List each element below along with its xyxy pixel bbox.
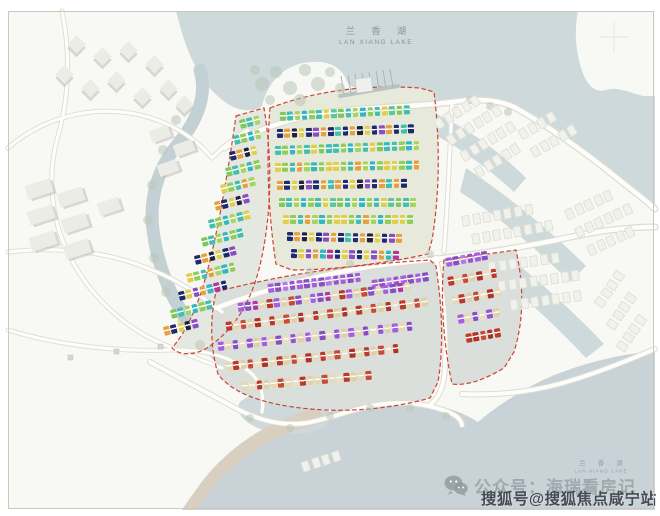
house-unit <box>285 378 291 387</box>
house-unit <box>198 302 206 312</box>
house-unit <box>364 250 370 259</box>
house-unit <box>400 215 406 224</box>
house-unit <box>252 301 259 311</box>
house-unit <box>282 282 289 292</box>
house-row <box>451 287 503 305</box>
house-unit <box>421 297 428 307</box>
house-unit <box>254 318 261 328</box>
house-unit <box>350 126 356 135</box>
house-unit <box>287 232 293 241</box>
house-unit <box>401 124 407 133</box>
house-unit <box>408 124 414 133</box>
house-unit <box>297 145 303 154</box>
house-row <box>178 280 230 301</box>
house-unit <box>240 133 248 143</box>
house-unit <box>319 162 325 171</box>
house-unit <box>386 125 392 134</box>
house-unit <box>243 147 251 157</box>
house-unit <box>308 198 314 207</box>
house-row <box>229 145 259 161</box>
house-unit <box>325 276 332 286</box>
house-unit <box>490 269 497 279</box>
house-unit <box>289 281 296 291</box>
house-unit <box>256 380 262 389</box>
sohu-watermark: 搜狐号@搜狐焦点咸宁站 <box>481 487 657 509</box>
house-row <box>201 228 246 247</box>
house-unit <box>184 305 192 315</box>
house-unit <box>262 358 268 368</box>
house-unit <box>392 323 398 333</box>
house-unit <box>345 233 351 242</box>
house-unit <box>317 293 324 303</box>
house-unit <box>356 305 363 315</box>
house-row <box>447 268 499 286</box>
house-unit <box>242 194 250 204</box>
house-unit <box>371 250 377 259</box>
house-unit <box>314 375 320 384</box>
house-unit <box>279 198 285 207</box>
house-unit <box>225 341 231 351</box>
house-unit <box>370 304 377 314</box>
house-unit <box>229 214 237 224</box>
house-unit <box>333 144 339 153</box>
house-unit <box>334 215 340 224</box>
house-row <box>208 210 253 229</box>
lake-label-top: 兰 香 湖 LAN XIANG LAKE <box>306 24 446 46</box>
house-unit <box>275 282 282 292</box>
house-unit <box>193 271 201 281</box>
house-row <box>279 198 418 207</box>
house-unit <box>337 198 343 207</box>
house-unit <box>351 372 357 381</box>
house-unit <box>404 105 410 114</box>
house-unit <box>382 234 388 243</box>
house-unit <box>324 292 331 302</box>
house-unit <box>483 270 490 280</box>
house-unit <box>457 314 464 324</box>
house-unit <box>318 277 325 287</box>
house-unit <box>253 115 261 125</box>
house-unit <box>309 232 315 241</box>
house-row <box>242 371 374 391</box>
house-unit <box>393 251 399 260</box>
house-unit <box>349 306 356 316</box>
house-unit <box>228 262 236 272</box>
house-unit <box>388 198 394 207</box>
house-unit <box>290 215 296 224</box>
house-unit <box>340 144 346 153</box>
house-unit <box>306 180 312 189</box>
house-unit <box>276 335 282 345</box>
house-unit <box>355 162 361 171</box>
house-unit <box>327 351 333 361</box>
house-unit <box>355 143 361 152</box>
house-unit <box>330 198 336 207</box>
house-unit <box>312 215 318 224</box>
house-unit <box>341 307 348 317</box>
house-unit <box>399 300 406 310</box>
house-unit <box>472 312 479 322</box>
house-unit <box>239 119 247 129</box>
house-unit <box>310 293 317 303</box>
house-unit <box>245 301 252 311</box>
house-unit <box>407 215 413 224</box>
house-unit <box>235 196 243 206</box>
house-unit <box>306 128 312 137</box>
house-unit <box>319 331 325 341</box>
house-unit <box>466 293 473 303</box>
house-unit <box>286 198 292 207</box>
house-unit <box>186 273 194 283</box>
house-unit <box>220 280 228 290</box>
house-unit <box>392 161 398 170</box>
house-unit <box>269 357 275 367</box>
house-unit <box>213 282 221 292</box>
house-unit <box>248 177 256 187</box>
house-unit <box>177 307 185 317</box>
house-unit <box>225 321 232 331</box>
house-unit <box>343 180 349 189</box>
house-unit <box>275 163 281 172</box>
house-row <box>280 105 412 121</box>
house-unit <box>250 146 258 156</box>
house-unit <box>406 141 412 150</box>
house-unit <box>338 233 344 242</box>
house-unit <box>363 304 370 314</box>
house-unit <box>386 179 392 188</box>
house-unit <box>299 128 305 137</box>
house-unit <box>345 198 351 207</box>
house-unit <box>215 250 223 260</box>
house-unit <box>276 315 283 325</box>
house-unit <box>332 291 339 301</box>
house-unit <box>371 215 377 224</box>
house-unit <box>281 297 288 307</box>
house-row <box>277 124 416 138</box>
house-unit <box>170 309 178 319</box>
house-row <box>233 129 263 145</box>
house-unit <box>218 341 224 351</box>
house-unit <box>320 250 326 259</box>
house-unit <box>367 107 373 116</box>
house-unit <box>254 130 262 140</box>
house-unit <box>354 273 361 283</box>
house-unit <box>389 106 395 115</box>
house-unit <box>259 300 266 310</box>
lake-name-zh: 兰 香 湖 <box>306 24 446 37</box>
house-unit <box>335 180 341 189</box>
house-unit <box>341 215 347 224</box>
house-unit <box>208 219 216 229</box>
house-unit <box>242 382 248 391</box>
house-unit <box>311 145 317 154</box>
house-unit <box>239 163 247 173</box>
house-row <box>287 232 404 243</box>
house-unit <box>312 311 319 321</box>
house-unit <box>184 321 192 331</box>
house-unit <box>378 345 384 355</box>
house-unit <box>415 273 422 283</box>
house-unit <box>333 162 339 171</box>
house-unit <box>225 167 233 177</box>
house-unit <box>362 161 368 170</box>
house-row <box>239 115 262 129</box>
house-unit <box>334 308 341 318</box>
house-unit <box>361 287 368 297</box>
house-unit <box>334 329 340 339</box>
house-unit <box>222 215 230 225</box>
house-unit <box>311 278 318 288</box>
house-unit <box>379 179 385 188</box>
house-unit <box>340 274 347 284</box>
house-unit <box>163 326 171 336</box>
house-unit <box>321 180 327 189</box>
house-unit <box>372 179 378 188</box>
house-unit <box>334 350 340 360</box>
house-unit <box>494 328 501 338</box>
house-unit <box>249 381 255 390</box>
house-unit <box>335 127 341 136</box>
house-unit <box>222 248 230 258</box>
house-unit <box>311 162 317 171</box>
house-unit <box>309 110 315 119</box>
house-unit <box>386 251 392 260</box>
house-unit <box>298 215 304 224</box>
house-unit <box>246 162 254 172</box>
house-unit <box>305 312 312 322</box>
house-unit <box>239 339 245 349</box>
house-unit <box>460 255 467 265</box>
house-row <box>186 262 238 283</box>
house-unit <box>320 352 326 362</box>
house-unit <box>283 215 289 224</box>
house-unit <box>236 228 244 238</box>
house-unit <box>303 294 310 304</box>
house-unit <box>403 198 409 207</box>
house-unit <box>370 161 376 170</box>
house-unit <box>480 331 487 341</box>
house-unit <box>363 326 369 336</box>
house-unit <box>363 347 369 357</box>
house-unit <box>353 233 359 242</box>
house-unit <box>331 233 337 242</box>
house-row <box>291 249 401 260</box>
house-unit <box>262 317 269 327</box>
house-unit <box>360 108 366 117</box>
house-unit <box>291 355 297 365</box>
house-unit <box>206 284 214 294</box>
house-unit <box>200 269 208 279</box>
house-unit <box>319 215 325 224</box>
house-unit <box>467 253 474 263</box>
house-unit <box>445 257 452 267</box>
house-unit <box>226 361 232 371</box>
house-row <box>465 328 502 343</box>
house-unit <box>292 181 298 190</box>
house-unit <box>493 308 500 318</box>
house-unit <box>233 320 240 330</box>
house-unit <box>191 319 199 329</box>
house-unit <box>280 112 286 121</box>
house-unit <box>392 344 398 354</box>
house-unit <box>476 271 483 281</box>
house-unit <box>422 272 429 282</box>
house-row <box>225 159 263 177</box>
house-row <box>163 318 201 336</box>
house-unit <box>396 106 402 115</box>
house-unit <box>329 374 335 383</box>
house-unit <box>382 285 389 295</box>
house-unit <box>299 181 305 190</box>
house-unit <box>338 109 344 118</box>
house-unit <box>347 274 354 284</box>
house-unit <box>353 288 360 298</box>
house-unit <box>178 291 186 301</box>
house-unit <box>352 198 358 207</box>
house-unit <box>313 128 319 137</box>
house-unit <box>205 300 213 310</box>
house-unit <box>335 250 341 259</box>
house-unit <box>269 316 276 326</box>
house-unit <box>289 145 295 154</box>
house-unit <box>313 249 319 258</box>
house-unit <box>328 180 334 189</box>
house-unit <box>377 161 383 170</box>
house-unit <box>355 327 361 337</box>
house-unit <box>385 302 392 312</box>
house-unit <box>389 234 395 243</box>
house-unit <box>284 355 290 365</box>
house-unit <box>290 163 296 172</box>
house-unit <box>215 217 223 227</box>
house-unit <box>341 328 347 338</box>
house-unit <box>316 110 322 119</box>
house-unit <box>345 108 351 117</box>
house-unit <box>472 332 479 342</box>
house-unit <box>301 198 307 207</box>
house-unit <box>277 181 283 190</box>
house-unit <box>392 301 399 311</box>
house-row <box>277 179 408 190</box>
house-unit <box>207 268 215 278</box>
house-unit <box>287 111 293 120</box>
house-unit <box>304 145 310 154</box>
house-unit <box>229 151 237 161</box>
house-unit <box>327 215 333 224</box>
house-unit <box>377 325 383 335</box>
house-unit <box>315 198 321 207</box>
house-unit <box>374 234 380 243</box>
house-unit <box>170 324 178 334</box>
house-unit <box>233 361 239 371</box>
house-unit <box>487 289 494 299</box>
house-unit <box>296 280 303 290</box>
house-row <box>457 307 502 323</box>
house-unit <box>336 373 342 382</box>
house-unit <box>233 135 241 145</box>
house-unit <box>254 338 260 348</box>
house-unit <box>240 360 246 370</box>
house-unit <box>298 249 304 258</box>
house-unit <box>410 198 416 207</box>
house-unit <box>323 233 329 242</box>
house-unit <box>276 356 282 366</box>
house-unit <box>381 198 387 207</box>
house-unit <box>297 163 303 172</box>
house-unit <box>297 333 303 343</box>
colored-houses-layer <box>0 0 660 516</box>
house-unit <box>328 127 334 136</box>
house-unit <box>394 125 400 134</box>
house-unit <box>331 109 337 118</box>
house-unit <box>295 295 302 305</box>
house-unit <box>368 286 375 296</box>
house-row <box>283 215 414 224</box>
house-unit <box>221 199 229 209</box>
house-row <box>275 141 421 155</box>
house-unit <box>349 250 355 259</box>
house-unit <box>302 111 308 120</box>
house-unit <box>385 215 391 224</box>
house-unit <box>384 324 390 334</box>
house-unit <box>348 328 354 338</box>
house-unit <box>283 314 290 324</box>
house-unit <box>342 250 348 259</box>
house-unit <box>479 310 486 320</box>
house-unit <box>486 309 493 319</box>
house-unit <box>298 312 305 322</box>
house-unit <box>291 313 298 323</box>
house-unit <box>401 179 407 188</box>
house-row <box>275 160 421 172</box>
house-unit <box>298 354 304 364</box>
house-unit <box>327 309 334 319</box>
house-unit <box>462 274 469 284</box>
house-unit <box>374 107 380 116</box>
house-unit <box>306 249 312 258</box>
house-unit <box>305 215 311 224</box>
house-unit <box>271 379 277 388</box>
lake-name-zh: 兰 香 湖 <box>569 458 634 467</box>
house-unit <box>208 251 216 261</box>
house-unit <box>372 126 378 135</box>
house-unit <box>378 303 385 313</box>
house-row <box>445 250 490 266</box>
house-unit <box>474 252 481 262</box>
house-unit <box>292 377 298 386</box>
house-unit <box>268 336 274 346</box>
house-unit <box>370 143 376 152</box>
house-unit <box>364 126 370 135</box>
house-unit <box>253 160 261 170</box>
house-unit <box>364 179 370 188</box>
house-unit <box>291 249 297 258</box>
house-row <box>226 344 401 371</box>
house-unit <box>357 250 363 259</box>
house-unit <box>367 198 373 207</box>
house-unit <box>363 215 369 224</box>
house-unit <box>185 289 193 299</box>
house-unit <box>326 162 332 171</box>
house-unit <box>379 125 385 134</box>
house-unit <box>263 380 269 389</box>
house-unit <box>194 255 202 265</box>
house-unit <box>356 215 362 224</box>
house-unit <box>241 179 249 189</box>
house-unit <box>358 371 364 380</box>
house-unit <box>413 141 419 150</box>
house-unit <box>396 234 402 243</box>
